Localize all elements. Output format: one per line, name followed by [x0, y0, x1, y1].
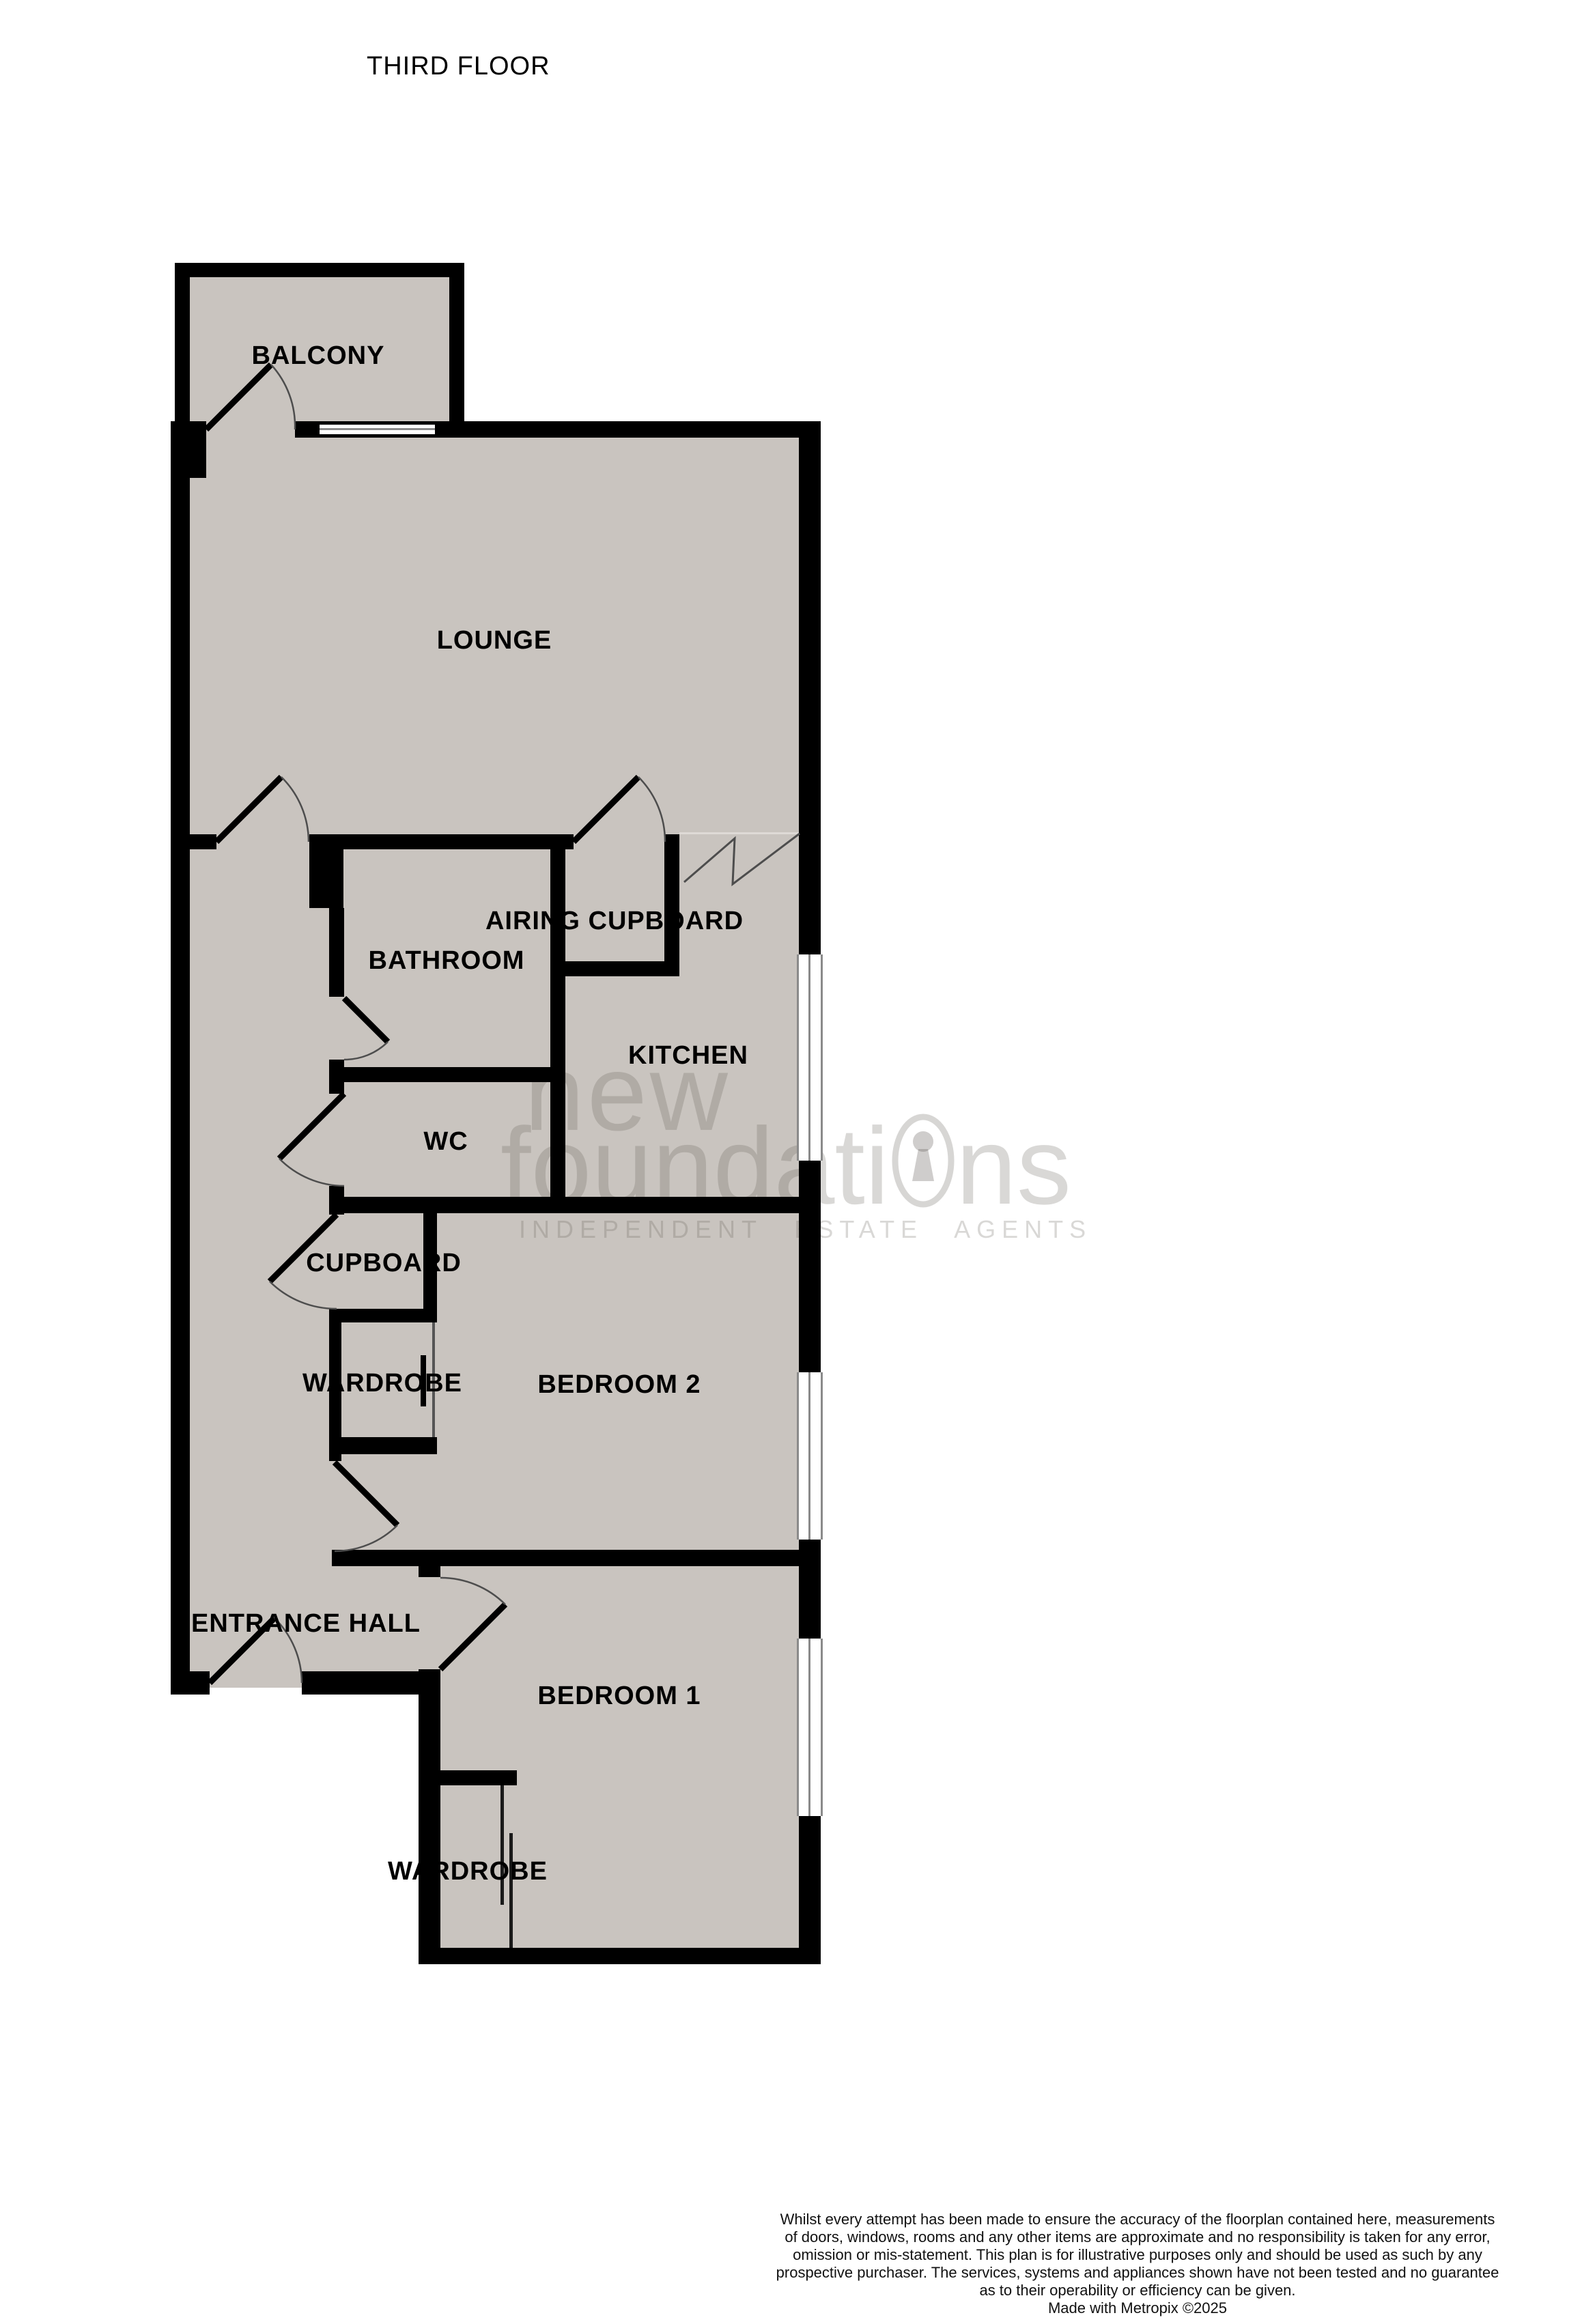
- wardrobe1-line-a: [500, 1785, 504, 1905]
- wall-lounge-top-right: [435, 421, 821, 438]
- disclaimer-credit: Made with Metropix ©2025: [735, 2299, 1540, 2317]
- keyhole-icon: [895, 1117, 951, 1204]
- disclaimer: Whilst every attempt has been made to en…: [735, 2211, 1540, 2317]
- disclaimer-line: omission or mis-statement. This plan is …: [735, 2246, 1540, 2264]
- window-kitchen: [797, 954, 823, 1161]
- wall-lounge-top-mid: [295, 421, 320, 438]
- wall-balcony-left: [175, 263, 190, 438]
- wall-wardrobe2-bottom: [329, 1437, 437, 1454]
- wall-bathroom-kitchen-divider: [550, 834, 565, 1213]
- room-label-wardrobe-bedroom2: WARDROBE: [302, 1369, 462, 1398]
- room-label-entrance-hall: ENTRANCE HALL: [191, 1609, 421, 1638]
- watermark-word-foundations-right: ns: [956, 1105, 1071, 1227]
- wall-balcony-right: [449, 263, 464, 438]
- disclaimer-line: Whilst every attempt has been made to en…: [735, 2211, 1540, 2228]
- wall-airing-cupboard-right: [664, 834, 679, 976]
- wall-bathroom-left-block: [309, 834, 343, 908]
- room-label-bathroom: BATHROOM: [369, 946, 525, 975]
- wall-lounge-bottom-a: [171, 834, 216, 849]
- wall-bathroom-bottom: [329, 1067, 565, 1082]
- wardrobe1-line-b: [509, 1833, 513, 1948]
- wall-wardrobe1-top-stub: [440, 1770, 517, 1785]
- room-label-balcony: BALCONY: [252, 341, 385, 370]
- floorplan-page: { "title": "THIRD FLOOR", "rooms": [ {"i…: [0, 0, 1595, 2324]
- lower-floor: [178, 842, 817, 1958]
- wall-wc-kitchen-bottom: [329, 1197, 821, 1213]
- window-bedroom2: [797, 1372, 823, 1540]
- disclaimer-line: of doors, windows, rooms and any other i…: [735, 2228, 1540, 2246]
- disclaimer-line: as to their operability or efficiency ca…: [735, 2282, 1540, 2299]
- wall-hall-bottom-left: [171, 1671, 210, 1695]
- wall-wardrobe2-top: [329, 1309, 437, 1322]
- wall-exterior-left: [171, 421, 190, 1695]
- wall-hall-bottom-right: [302, 1671, 419, 1695]
- wall-bathroom-left-mid: [329, 908, 344, 997]
- room-label-lounge: LOUNGE: [437, 626, 552, 655]
- wall-lounge-bottom-b: [343, 834, 574, 849]
- wall-bedroom1-left-jamb: [419, 1550, 440, 1577]
- open-plan-floor-line: [679, 832, 799, 834]
- window-balcony: [320, 421, 435, 438]
- room-label-wardrobe-bedroom1: WARDROBE: [388, 1857, 548, 1886]
- wall-balcony-top: [175, 263, 464, 277]
- window-bedroom1: [797, 1639, 823, 1816]
- wall-bedroom2-bottom: [332, 1550, 821, 1566]
- wall-bedroom1-left: [419, 1669, 440, 1964]
- room-label-cupboard: CUPBOARD: [306, 1249, 462, 1277]
- wall-bedroom1-bottom: [419, 1948, 821, 1964]
- wall-airing-cupboard-bottom: [550, 961, 679, 976]
- room-label-bedroom2: BEDROOM 2: [537, 1370, 701, 1399]
- room-label-wc: WC: [423, 1127, 468, 1156]
- room-label-kitchen: KITCHEN: [628, 1041, 748, 1070]
- room-label-bedroom1: BEDROOM 1: [537, 1682, 701, 1710]
- floorplan-drawing: new foundati ns INDEPENDENT ESTATE AGENT…: [0, 0, 1595, 2324]
- disclaimer-line: prospective purchaser. The services, sys…: [735, 2264, 1540, 2282]
- room-label-airing-cupboard: AIRING CUPBOARD: [485, 907, 744, 935]
